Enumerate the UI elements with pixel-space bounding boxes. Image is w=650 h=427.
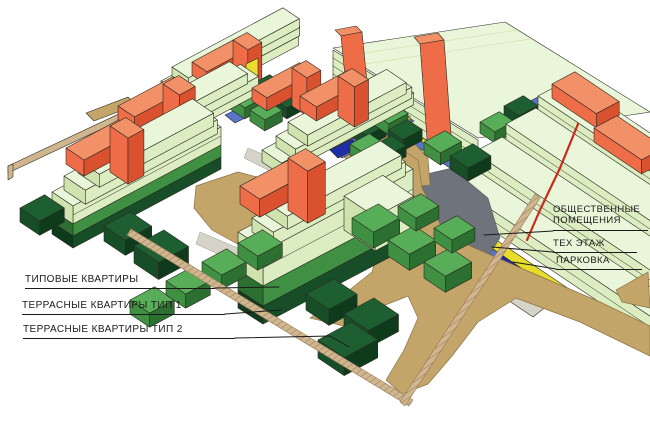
label-parking: ПАРКОВКА bbox=[556, 256, 642, 270]
label-typical-apartments: ТИПОВЫЕ КВАРТИРЫ bbox=[25, 274, 215, 289]
label-terraced-apartments-type2: ТЕРРАСНЫЕ КВАРТИРЫ ТИП 2 bbox=[23, 324, 235, 339]
label-public-premises: ОБЩЕСТВЕННЫЕ ПОМЕЩЕНИЯ bbox=[553, 205, 648, 231]
label-terraced-apartments-type1: ТЕРРАСНЫЕ КВАРТИРЫ ТИП 1 bbox=[22, 300, 225, 315]
label-tech-floor: ТЕХ ЭТАЖ bbox=[553, 239, 637, 253]
massing-diagram-page: ТИПОВЫЕ КВАРТИРЫ ТЕРРАСНЫЕ КВАРТИРЫ ТИП … bbox=[0, 0, 650, 427]
